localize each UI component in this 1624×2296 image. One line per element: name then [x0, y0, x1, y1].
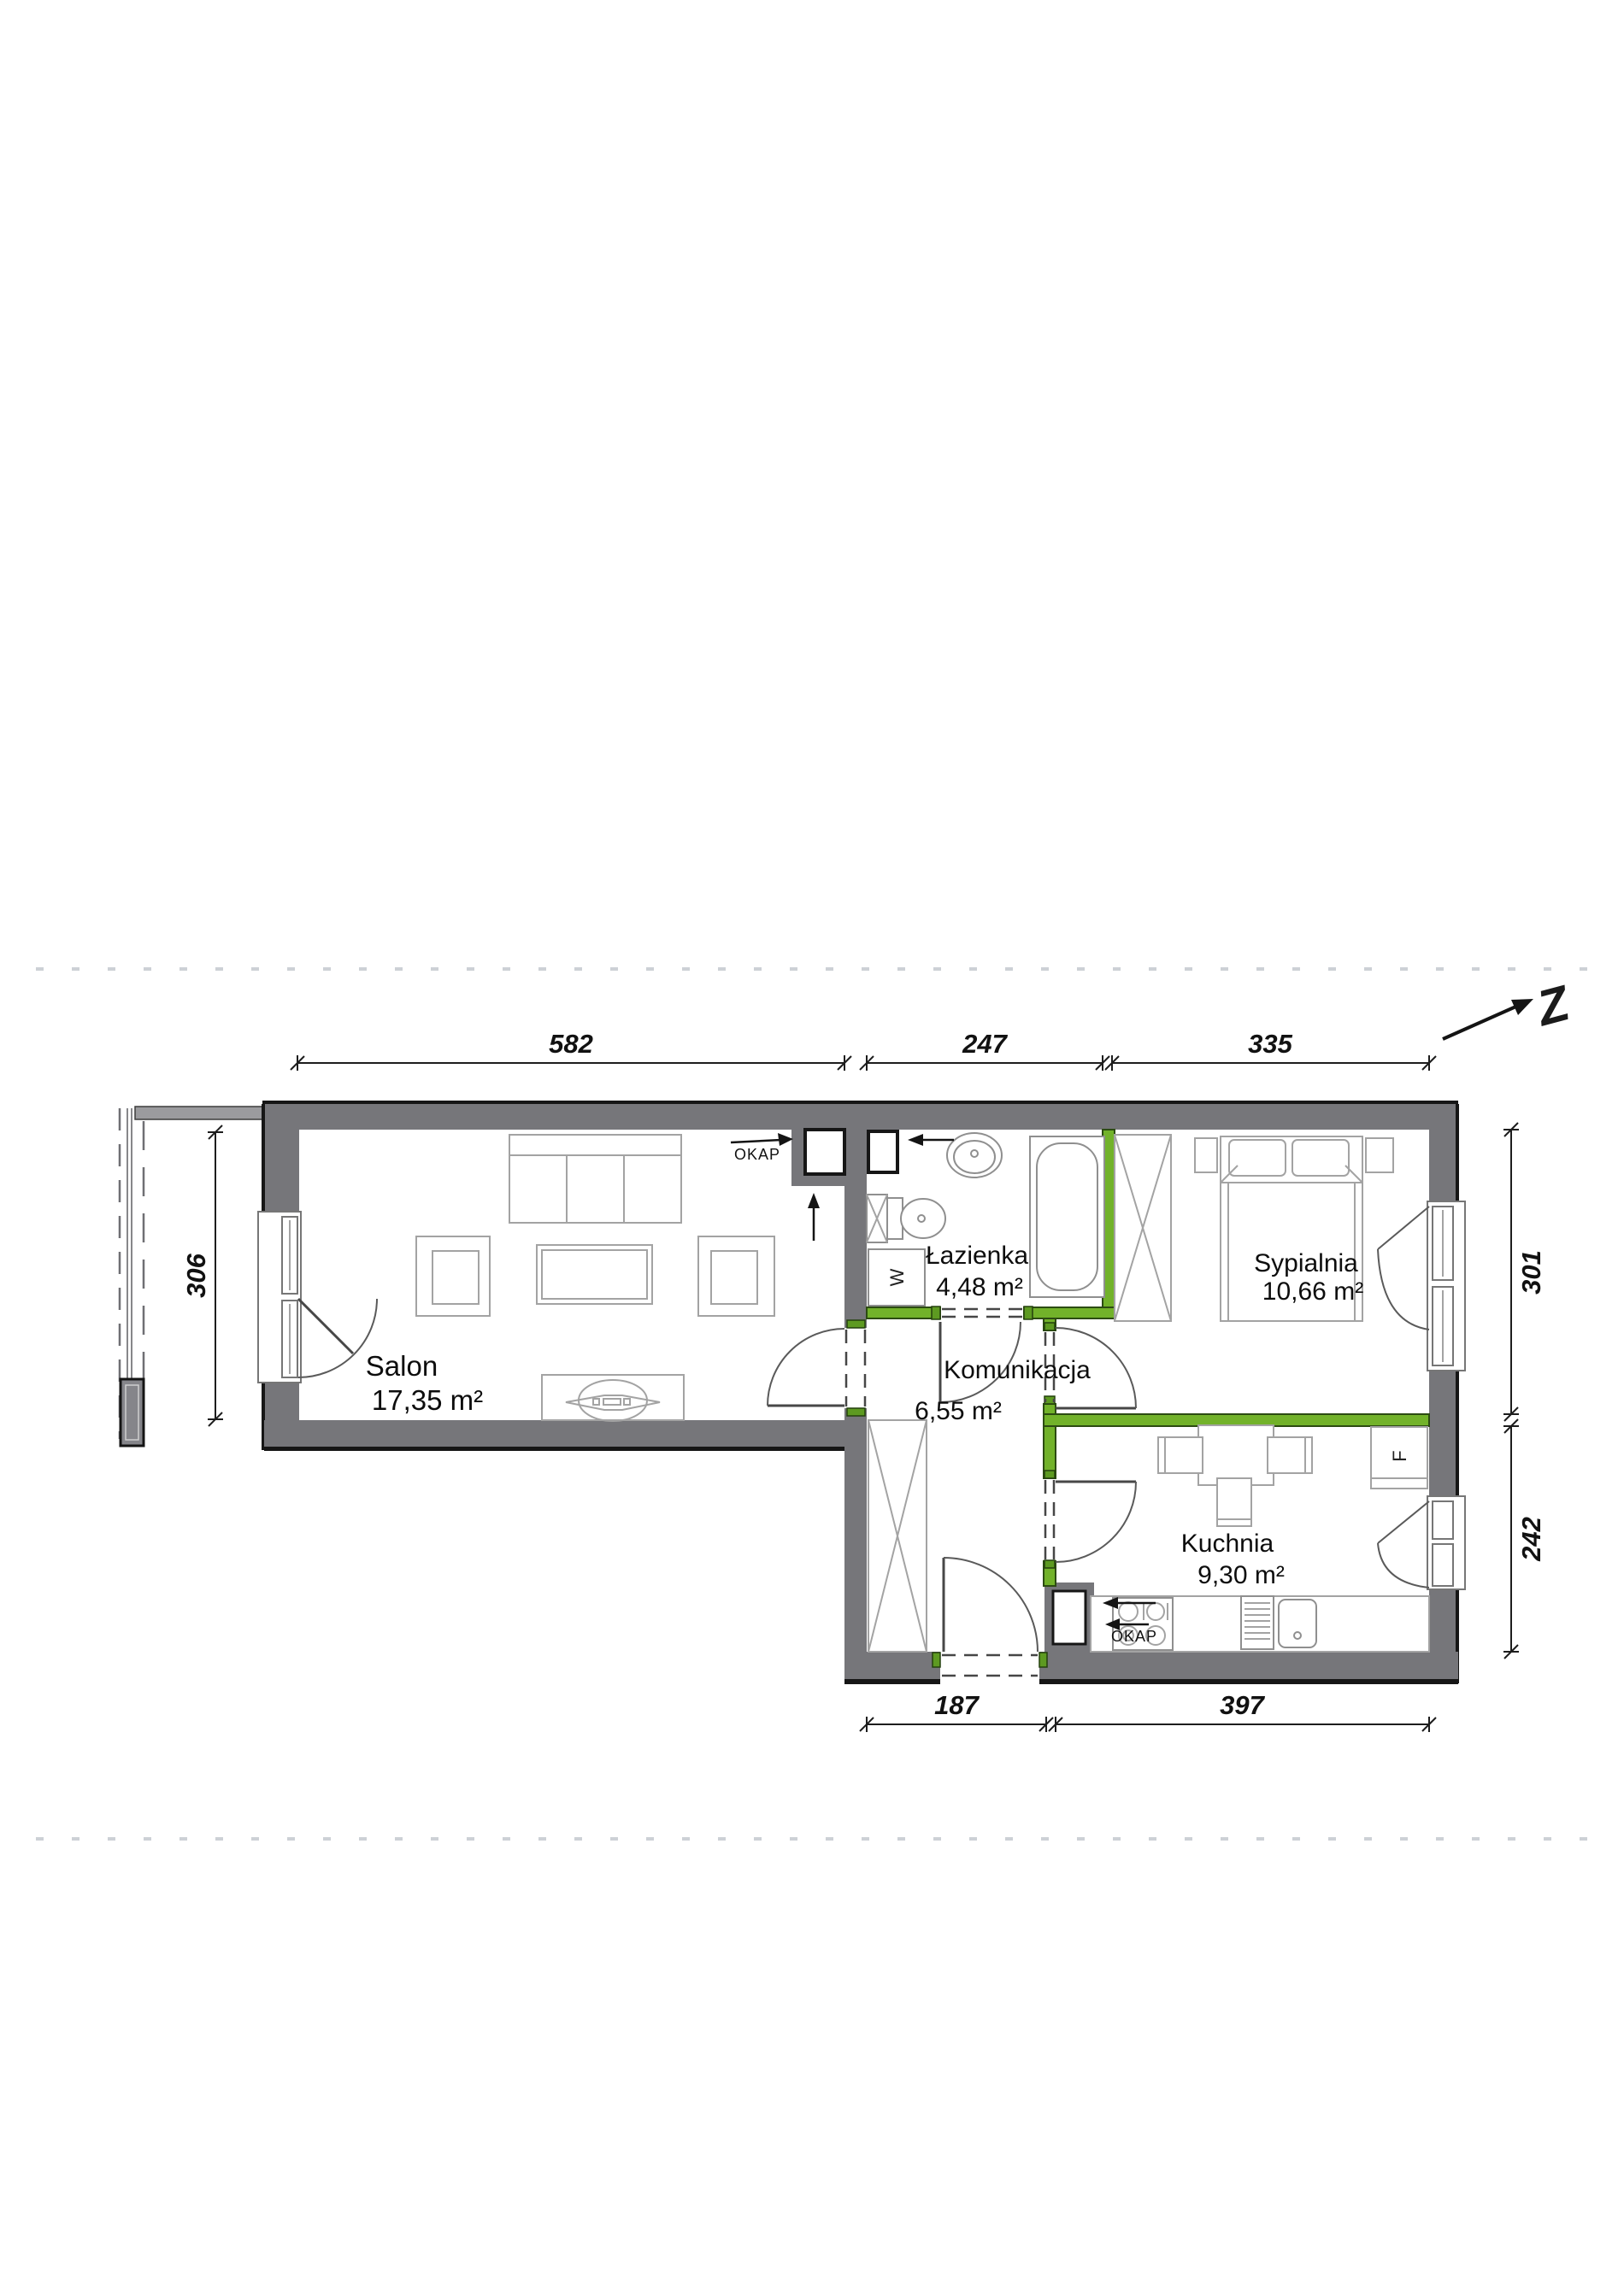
- dim-top-247: 247: [860, 1029, 1109, 1071]
- partition-bathroom-bottom-right: [1024, 1307, 1115, 1318]
- room-label-salon: Salon: [366, 1350, 438, 1382]
- jamb-salon-door-top: [847, 1320, 865, 1328]
- dim-left-306-label: 306: [181, 1253, 211, 1297]
- floor-plan-page: Z: [0, 0, 1624, 2296]
- window-kitchen: [1378, 1496, 1465, 1589]
- opening-salon-door: [846, 1330, 865, 1406]
- nightstand-left: [1195, 1138, 1217, 1172]
- dim-bottom-187: 187: [860, 1690, 1053, 1732]
- tv-stand: [542, 1375, 684, 1420]
- wall-edge-right: [1456, 1104, 1459, 1683]
- wall-edge-left-upper: [262, 1104, 265, 1213]
- dim-top-582-label: 582: [549, 1029, 593, 1059]
- door-arc-salon: [768, 1329, 844, 1406]
- coffee-table: [537, 1245, 652, 1304]
- fridge-label: F: [1389, 1450, 1410, 1461]
- door-arc-entrance: [944, 1558, 1038, 1652]
- window-kitchen-open-arc: [1378, 1543, 1429, 1588]
- door-arc-kitchen: [1056, 1482, 1136, 1562]
- kitchen-sink-drain-icon: [1294, 1632, 1301, 1639]
- room-area-kuchnia: 9,30 m²: [1197, 1561, 1285, 1589]
- compass-arrow-head-icon: [1511, 999, 1533, 1015]
- room-area-salon: 17,35 m²: [372, 1384, 483, 1416]
- dim-bottom-187-label: 187: [934, 1690, 980, 1720]
- jamb-entrance-right: [1039, 1653, 1047, 1667]
- room-area-sypialnia: 10,66 m²: [1262, 1277, 1363, 1306]
- dim-left-306: 306: [181, 1125, 223, 1426]
- salon-furniture: [416, 1135, 774, 1421]
- shaft-kitchen: [1053, 1591, 1086, 1644]
- dim-right-242-label: 242: [1516, 1517, 1546, 1562]
- jamb-salon-door-bottom: [847, 1408, 865, 1416]
- room-area-lazienka: 4,48 m²: [936, 1273, 1023, 1301]
- sofa: [509, 1135, 681, 1223]
- dim-top-582: 582: [291, 1029, 851, 1071]
- bed-pillow-left: [1229, 1140, 1286, 1176]
- wall-edge-kitchen-bottom: [1039, 1679, 1458, 1684]
- window-kitchen-open-line: [1378, 1501, 1429, 1543]
- hood-label-kitchen: OKAP: [1111, 1628, 1157, 1645]
- opening-kitchen-door: [1045, 1480, 1054, 1559]
- hood-label-salon: OKAP: [734, 1146, 780, 1163]
- jamb-kitchen-door-top: [1044, 1471, 1055, 1478]
- dim-bottom-397-label: 397: [1220, 1690, 1265, 1720]
- washing-machine-label: W: [886, 1268, 908, 1286]
- window-bedroom-open-arc: [1378, 1249, 1429, 1330]
- partition-bathroom-bottom-left: [867, 1307, 940, 1318]
- opening-entrance-door: [942, 1655, 1038, 1676]
- kitchen-table: [1198, 1425, 1274, 1485]
- bath-vent-arrow-icon: [908, 1134, 923, 1146]
- sink-drainer-lines: [1244, 1603, 1270, 1639]
- bathtub-inner: [1037, 1143, 1097, 1290]
- balcony-pillar: [121, 1379, 144, 1446]
- room-label-lazienka: Łazienka: [926, 1242, 1028, 1270]
- jamb-entrance-left: [933, 1653, 940, 1667]
- dim-bottom-397: 397: [1049, 1690, 1436, 1732]
- kitchen-sink: [1279, 1600, 1316, 1647]
- hood-arrow-salon-icon: [778, 1133, 793, 1146]
- wall-corridor-bottom: [844, 1652, 940, 1683]
- compass-label: Z: [1529, 975, 1576, 1037]
- balcony-slab: [135, 1107, 262, 1119]
- dim-top-335: 335: [1105, 1029, 1436, 1071]
- nightstand-right: [1366, 1138, 1393, 1172]
- dim-top-247-label: 247: [962, 1029, 1008, 1059]
- toilet-drain-icon: [918, 1215, 925, 1222]
- wall-salon-bottom: [264, 1420, 867, 1450]
- wall-right: [1429, 1104, 1458, 1683]
- room-label-kuchnia: Kuchnia: [1181, 1530, 1274, 1558]
- jamb-bedroom-door-top: [1044, 1323, 1055, 1330]
- dim-right-301: 301: [1503, 1123, 1546, 1421]
- compass-arrow-line: [1443, 1005, 1520, 1039]
- opening-bath-door: [942, 1309, 1022, 1317]
- corridor-furniture: [868, 1420, 927, 1652]
- vent-up-arrow-icon: [808, 1193, 820, 1208]
- bed-pillow-right: [1292, 1140, 1349, 1176]
- window-kitchen-sash-lower: [1433, 1544, 1453, 1586]
- jamb-bath-door-left: [932, 1307, 940, 1319]
- wall-edge-corridor-bottom: [844, 1679, 940, 1684]
- shaft-bathroom: [868, 1131, 897, 1172]
- shaft-salon: [805, 1130, 844, 1174]
- wall-kitchen-bottom: [1039, 1652, 1458, 1683]
- window-bedroom: [1378, 1201, 1465, 1371]
- wall-edge-salon-bottom: [264, 1447, 867, 1451]
- wall-top: [262, 1104, 1458, 1130]
- compass: Z: [1443, 975, 1577, 1039]
- dim-top-335-label: 335: [1248, 1029, 1292, 1059]
- room-label-sypialnia: Sypialnia: [1254, 1249, 1358, 1277]
- jamb-kitchen-door-bottom: [1044, 1560, 1055, 1568]
- floor-plan-drawing: Z: [0, 0, 1624, 2296]
- door-leaf-balcony: [298, 1299, 353, 1354]
- window-bedroom-open-line: [1378, 1207, 1429, 1249]
- wall-salon-corridor-upper: [844, 1130, 867, 1328]
- window-kitchen-sash-upper: [1433, 1501, 1453, 1539]
- room-area-komunikacja: 6,55 m²: [915, 1397, 1002, 1425]
- hood-arrow-salon-line: [731, 1140, 781, 1142]
- dim-right-301-label: 301: [1516, 1250, 1546, 1295]
- wall-salon-corridor-lower: [844, 1408, 867, 1683]
- partition-bedroom-kitchen: [1044, 1414, 1429, 1426]
- window-balcony-door: [258, 1212, 301, 1383]
- dim-right-242: 242: [1503, 1419, 1546, 1659]
- sink-tap-icon: [971, 1150, 978, 1157]
- jamb-bath-door-right: [1024, 1307, 1033, 1319]
- sink-drainer: [1241, 1596, 1274, 1649]
- room-label-komunikacja: Komunikacja: [944, 1356, 1091, 1384]
